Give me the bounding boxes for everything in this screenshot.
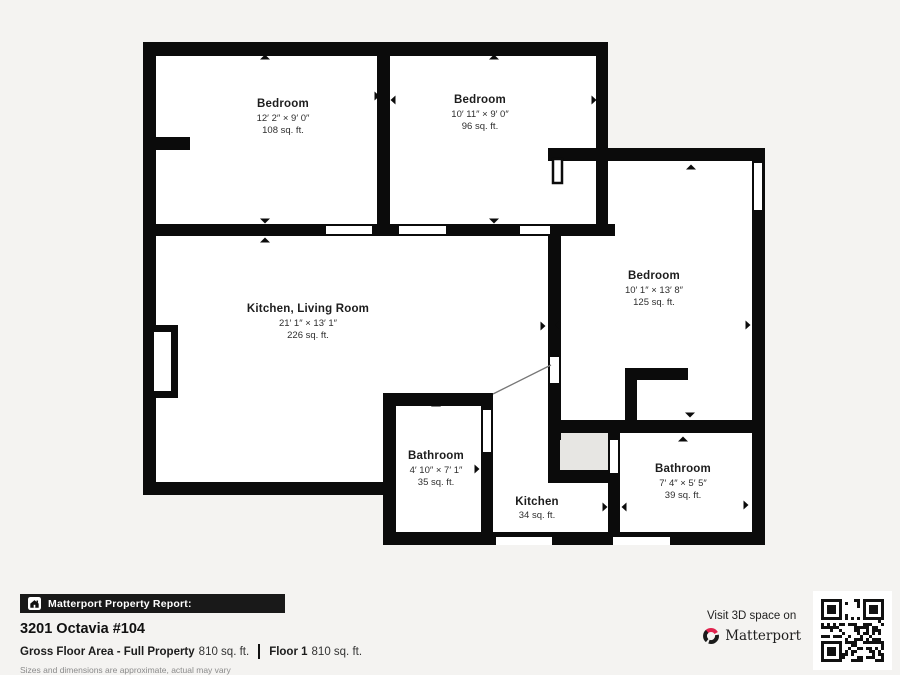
floor-areas [143,42,765,545]
gross-area-value: 810 sq. ft. [199,646,250,658]
floor1-value: 810 sq. ft. [312,646,363,658]
qr-code [813,591,892,670]
promo-text: Visit 3D space on Matterport [702,610,801,645]
disclaimer-text: Sizes and dimensions are approximate, ac… [20,665,440,675]
property-report: Matterport Property Report: 3201 Octavia… [20,594,440,675]
matterport-wordmark: Matterport [725,628,801,644]
property-address: 3201 Octavia #104 [20,621,440,637]
floor-area-row: Gross Floor Area - Full Property 810 sq.… [20,644,440,659]
matterport-logo-icon [702,627,720,645]
house-icon [28,597,41,610]
report-bar-label: Matterport Property Report: [48,598,192,610]
floor-plan-graphic [0,0,900,675]
closet-door-leaf [553,159,562,183]
gross-area-label: Gross Floor Area - Full Property [20,646,195,658]
visit-3d-label: Visit 3D space on [702,610,801,622]
visit-3d-promo: Visit 3D space on Matterport [702,591,892,670]
floor1-label: Floor 1 [269,646,307,658]
report-bar: Matterport Property Report: [20,594,285,613]
matterport-logo: Matterport [702,627,801,645]
divider [258,644,260,659]
wall-niche [151,329,175,395]
